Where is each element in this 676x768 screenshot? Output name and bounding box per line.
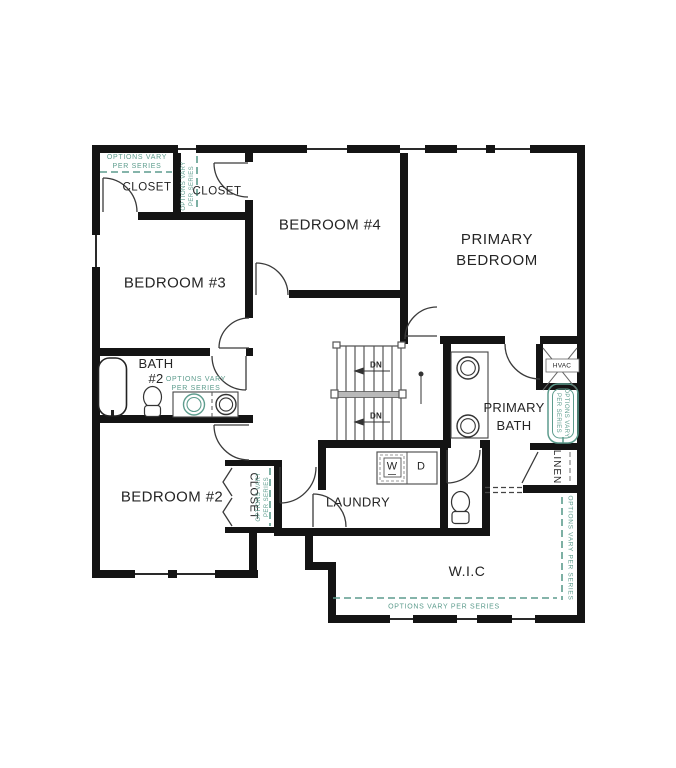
- options-note-closet-divider: OPTIONS VARY PER SERIES: [180, 161, 196, 210]
- door-linen: [522, 452, 538, 483]
- primary-bedroom-line1: PRIMARY: [456, 229, 538, 250]
- linen-label: LINEN: [550, 450, 562, 484]
- options-note-line2: PER SERIES: [188, 161, 196, 210]
- primary-bath-line2: BATH: [483, 417, 544, 435]
- closet-bedroom3-label: CLOSET: [122, 181, 171, 194]
- options-note-line2: PER SERIES: [263, 472, 271, 521]
- options-note-line1: OPTIONS VARY: [107, 153, 167, 162]
- options-note-line2: PER SERIES: [166, 384, 226, 393]
- vanity-primary-bath: [451, 352, 488, 438]
- stair-treads-lower: [346, 397, 392, 440]
- options-note-primary-tub: OPTIONS VARY PER SERIES: [554, 388, 570, 437]
- stairs-dn-upper: DN: [370, 360, 382, 369]
- staircase: [331, 342, 406, 440]
- closet-bedroom4-label: CLOSET: [192, 185, 241, 198]
- bedroom3-label: BEDROOM #3: [124, 274, 226, 291]
- door-bedroom2: [214, 425, 249, 460]
- door-bedroom3: [219, 318, 249, 348]
- bath2-line1: BATH: [139, 356, 174, 371]
- door-hall: [280, 467, 316, 503]
- options-note-closet-bedroom2: OPTIONS VARY PER SERIES: [255, 472, 271, 521]
- vanity-bath2: [173, 392, 238, 417]
- options-note-line2: PER SERIES: [107, 162, 167, 171]
- options-note-bath2: OPTIONS VARY PER SERIES: [166, 375, 226, 393]
- washer-label: W: [387, 461, 397, 474]
- door-primary-bath: [505, 344, 540, 379]
- door-bedroom4: [256, 263, 288, 295]
- floor-plan-drawing: [0, 0, 676, 768]
- toilet-bath2: [144, 387, 162, 417]
- door-primary-bedroom: [405, 307, 437, 339]
- laundry-label: LAUNDRY: [326, 495, 390, 510]
- primary-bedroom-line2: BEDROOM: [456, 250, 538, 271]
- options-note-wic-right: OPTIONS VARY PER SERIES: [566, 496, 575, 601]
- toilet-water-closet: [452, 492, 470, 524]
- options-note-line1: OPTIONS VARY: [180, 161, 188, 210]
- bifold-closet-bedroom2: [223, 468, 232, 526]
- wic-label: W.I.C: [449, 563, 486, 579]
- options-note-wic-bottom: OPTIONS VARY PER SERIES: [388, 603, 500, 612]
- bathtub-bath2: [99, 358, 127, 416]
- stair-treads-upper: [346, 346, 392, 392]
- primary-bath-line1: PRIMARY: [483, 399, 544, 417]
- stairs-dn-lower: DN: [370, 411, 382, 420]
- options-note-line1: OPTIONS VARY: [166, 375, 226, 384]
- primary-bath-label: PRIMARY BATH: [483, 399, 544, 435]
- hvac-label: HVAC: [553, 362, 571, 369]
- options-note-line1: OPTIONS VARY: [562, 388, 570, 437]
- floor-plan: BEDROOM #3 BEDROOM #4 BEDROOM #2 PRIMARY…: [0, 0, 676, 768]
- stair-center-rail: [334, 392, 404, 398]
- bedroom4-label: BEDROOM #4: [279, 216, 381, 233]
- primary-bedroom-label: PRIMARY BEDROOM: [456, 229, 538, 271]
- options-note-closet3: OPTIONS VARY PER SERIES: [107, 153, 167, 171]
- options-note-line2: PER SERIES: [554, 388, 562, 437]
- door-water-closet: [447, 450, 480, 483]
- stair-rail-marker: [419, 372, 423, 404]
- bedroom2-label: BEDROOM #2: [121, 488, 223, 505]
- dryer-label: D: [417, 461, 425, 474]
- options-note-line1: OPTIONS VARY: [255, 472, 263, 521]
